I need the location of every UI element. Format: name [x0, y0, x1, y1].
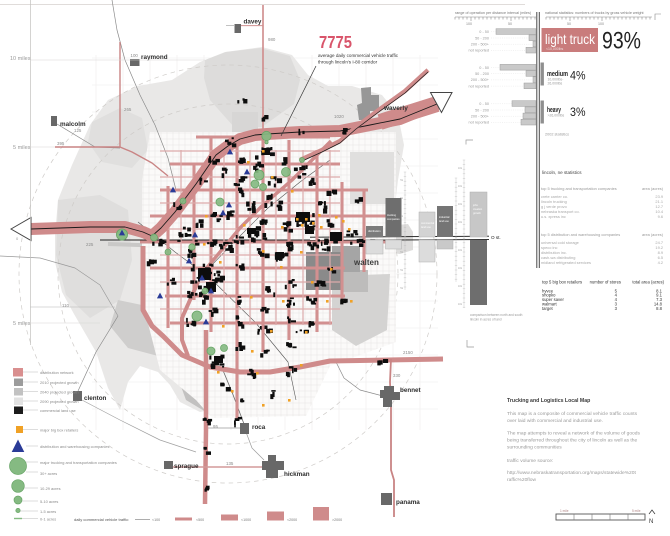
svg-text:10 miles: 10 miles — [10, 56, 31, 62]
svg-text:50 - 200: 50 - 200 — [475, 72, 489, 76]
svg-text:100: 100 — [131, 53, 139, 58]
svg-text:This map is a composite of com: This map is a composite of commercial ve… — [507, 411, 638, 417]
svg-text:110: 110 — [62, 303, 70, 308]
svg-text:jobs: jobs — [472, 203, 478, 207]
svg-text:7775: 7775 — [319, 32, 352, 52]
svg-text:daily commercial vehicle traff: daily commercial vehicle traffic: — [74, 517, 129, 522]
svg-text:walten: walten — [353, 258, 379, 267]
svg-text:1-5 acres: 1-5 acres — [40, 509, 56, 514]
svg-text:roca: roca — [252, 424, 266, 431]
svg-text:comparison between north and s: comparison between north and south — [470, 313, 523, 317]
svg-text:50: 50 — [508, 22, 512, 26]
svg-text:major big box retailers: major big box retailers — [40, 428, 78, 433]
svg-text:malcolm: malcolm — [60, 121, 86, 128]
svg-text:land use: land use — [439, 219, 449, 223]
svg-text:raffic%20flow: raffic%20flow — [507, 477, 536, 483]
svg-text:waverly: waverly — [383, 105, 408, 112]
svg-text:traffic volume source:: traffic volume source: — [507, 458, 553, 464]
svg-text:10-29 acres: 10-29 acres — [40, 486, 61, 491]
svg-text:50 - 200: 50 - 200 — [475, 108, 489, 112]
svg-text:50: 50 — [567, 22, 571, 26]
svg-text:200 - 500+: 200 - 500+ — [471, 115, 490, 119]
svg-text:100: 100 — [598, 22, 604, 26]
svg-text:9.6: 9.6 — [658, 214, 663, 219]
svg-text:<10,000lbs: <10,000lbs — [546, 47, 563, 51]
svg-text:surrounding communities: surrounding communities — [507, 445, 562, 451]
svg-text:10k: 10k — [458, 166, 463, 170]
svg-text:distribution and warehousing c: distribution and warehousing companies — [40, 444, 109, 449]
svg-text:>26,000lbs: >26,000lbs — [548, 114, 565, 118]
svg-text:5-10 acres: 5-10 acres — [40, 499, 58, 504]
svg-text:through lincoln's I-80 corrido: through lincoln's I-80 corridor — [318, 60, 378, 65]
svg-text:2010 projected growth: 2010 projected growth — [40, 380, 79, 385]
svg-text:being transferred throughout t: being transferred throughout the city of… — [507, 438, 638, 444]
svg-text:2150: 2150 — [403, 350, 413, 355]
svg-text:trucking: trucking — [387, 213, 397, 217]
svg-text:land use: land use — [421, 225, 431, 229]
svg-text:0 - 50: 0 - 50 — [479, 66, 489, 70]
svg-text:Trucking and Logistics Local M: Trucking and Logistics Local Map — [507, 398, 590, 404]
svg-text:2002 statistics: 2002 statistics — [545, 133, 569, 137]
svg-text:lincoln, ne statistics: lincoln, ne statistics — [542, 170, 582, 175]
svg-text:10k: 10k — [458, 184, 463, 188]
svg-text:5 mile: 5 mile — [632, 509, 641, 513]
svg-text:3%: 3% — [570, 105, 586, 119]
svg-text:980: 980 — [268, 37, 276, 42]
svg-text:panama: panama — [396, 499, 420, 506]
svg-text:light truck: light truck — [545, 31, 596, 47]
svg-text:1020: 1020 — [334, 114, 344, 119]
svg-text:0 - 50: 0 - 50 — [479, 30, 489, 34]
svg-text:125: 125 — [74, 128, 82, 133]
svg-text:http://www.nebraskatransportat: http://www.nebraskatransportation.org/ma… — [507, 470, 636, 476]
svg-text:average daily commercial vehic: average daily commercial vehicle traffic — [318, 53, 399, 58]
svg-text:26,000lbs: 26,000lbs — [548, 82, 563, 86]
svg-text:2040 projected growth: 2040 projected growth — [40, 390, 79, 395]
svg-text:0 - 50: 0 - 50 — [479, 102, 489, 106]
svg-text:major trucking and transportat: major trucking and transportation compan… — [40, 460, 117, 465]
svg-text:not reported: not reported — [469, 49, 489, 53]
svg-text:distribution: distribution — [368, 229, 381, 233]
svg-text:N: N — [649, 519, 653, 525]
svg-text:<1000: <1000 — [241, 518, 251, 522]
svg-text:top 5 big box retailers: top 5 big box retailers — [542, 280, 582, 285]
svg-text:not reported: not reported — [469, 121, 489, 125]
svg-text:hickman: hickman — [284, 471, 310, 478]
svg-text:225: 225 — [86, 242, 94, 247]
svg-text:u.s. xpress inc: u.s. xpress inc — [541, 214, 566, 219]
svg-text:area (acres): area (acres) — [642, 232, 664, 237]
svg-text:10k: 10k — [458, 302, 463, 306]
svg-text:commercial: commercial — [421, 221, 435, 225]
svg-text:top 5 distribution and warehou: top 5 distribution and warehousing compa… — [541, 232, 620, 237]
svg-text:top 5 trucking and transportat: top 5 trucking and transportation compan… — [541, 186, 617, 191]
svg-text:50 - 200: 50 - 200 — [475, 36, 489, 40]
svg-text:10k: 10k — [458, 248, 463, 252]
svg-text:commercial land use: commercial land use — [40, 408, 76, 413]
svg-text:clenton: clenton — [84, 395, 107, 402]
svg-text:total area (acres): total area (acres) — [632, 280, 664, 285]
svg-text:200 - 500+: 200 - 500+ — [471, 43, 490, 47]
svg-text:O st.: O st. — [491, 235, 501, 240]
svg-text:>2000: >2000 — [332, 518, 342, 522]
svg-text:5 miles: 5 miles — [13, 145, 31, 151]
svg-text:midland refrigerated services: midland refrigerated services — [541, 260, 591, 265]
svg-text:number of stores: number of stores — [590, 280, 621, 285]
svg-text:companies: companies — [387, 217, 400, 221]
svg-text:100: 100 — [466, 22, 472, 26]
svg-text:200 - 500+: 200 - 500+ — [471, 78, 490, 82]
svg-text:national statistics: numbers o: national statistics: numbers of trucks b… — [545, 11, 644, 15]
svg-text:target: target — [542, 306, 554, 311]
svg-text:30+ acres: 30+ acres — [40, 471, 57, 476]
svg-text:sprague: sprague — [174, 463, 199, 470]
svg-text:330: 330 — [393, 373, 401, 378]
svg-text:8.8: 8.8 — [656, 306, 662, 311]
svg-text:The map attempts to reveal a n: The map attempts to reveal a network of … — [507, 431, 640, 437]
svg-text:<100: <100 — [152, 518, 160, 522]
svg-text:<2000: <2000 — [287, 518, 297, 522]
svg-text:creation: creation — [473, 207, 483, 211]
svg-text:10k: 10k — [458, 266, 463, 270]
svg-text:lincoln in acres of land: lincoln in acres of land — [470, 318, 502, 322]
svg-text:1 mile: 1 mile — [560, 509, 569, 513]
svg-text:5 miles: 5 miles — [13, 321, 31, 327]
svg-text:growth: growth — [473, 211, 481, 215]
svg-text:davey: davey — [244, 19, 262, 26]
svg-text:95: 95 — [213, 424, 218, 429]
svg-text:not reported: not reported — [469, 84, 489, 88]
svg-text:2090 projected growth: 2090 projected growth — [40, 399, 79, 404]
svg-text:93%: 93% — [602, 28, 641, 55]
svg-text:4.2: 4.2 — [658, 260, 663, 265]
svg-text:10k: 10k — [458, 220, 463, 224]
svg-text:135: 135 — [226, 461, 234, 466]
svg-text:over laid with commercial and: over laid with commercial and industrial… — [507, 418, 603, 424]
svg-text:bennet: bennet — [400, 387, 422, 394]
svg-text:265: 265 — [124, 107, 132, 112]
svg-text:4%: 4% — [570, 69, 586, 83]
svg-text:10k: 10k — [458, 284, 463, 288]
svg-text:0-1 acres: 0-1 acres — [40, 517, 56, 522]
svg-text:range of operation per distanc: range of operation per distance interval… — [455, 11, 531, 15]
svg-text:395: 395 — [57, 141, 65, 146]
svg-text:industrial: industrial — [439, 215, 450, 219]
svg-text:distribution network: distribution network — [40, 370, 74, 375]
svg-text:10k: 10k — [458, 202, 463, 206]
svg-text:area (acres): area (acres) — [642, 186, 664, 191]
svg-text:<500: <500 — [196, 518, 204, 522]
